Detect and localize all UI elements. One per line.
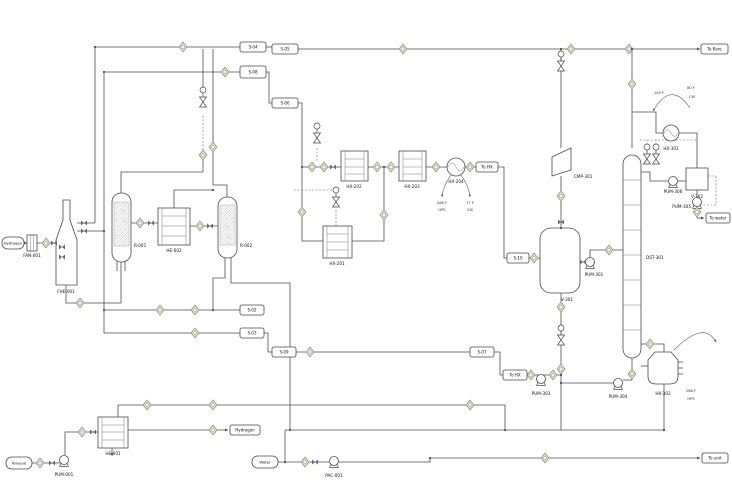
utility-arrow-icon xyxy=(653,95,690,111)
feed-flag-water[interactable]: Water xyxy=(252,456,278,468)
pipe-segment xyxy=(213,258,225,310)
equipment-label-he001: HE-001 xyxy=(105,451,121,456)
stream-indicator-icon[interactable] xyxy=(380,210,388,220)
pipe-junction xyxy=(560,48,562,50)
equipment-pum304[interactable] xyxy=(614,379,623,390)
stream-tag-label: To HX xyxy=(480,165,492,170)
stream-tag-to-hx-2[interactable]: To HX xyxy=(503,370,527,380)
stream-indicator-icon[interactable] xyxy=(646,339,654,349)
equipment-fan001[interactable]: FAN-001 xyxy=(23,235,41,258)
stream-indicator-icon[interactable] xyxy=(298,207,306,217)
hx204-utility-left: HPS xyxy=(438,208,446,212)
equipment-label-pum001: PUM-001 xyxy=(55,472,74,477)
utility-arrow-icon xyxy=(674,333,716,350)
stream-tag-label: S-06 xyxy=(280,101,290,106)
equipment-label-dst301: DST-301 xyxy=(646,255,664,260)
stream-indicator-icon[interactable] xyxy=(199,150,207,160)
equipment-he002[interactable]: HE-002 xyxy=(158,208,190,253)
equipment-hx302[interactable]: HX-302 268 F HPS xyxy=(648,352,696,401)
pipe-segment xyxy=(632,112,663,133)
stream-indicator-icon[interactable] xyxy=(209,142,217,152)
pipe-segment xyxy=(118,405,505,430)
equipment-label-pum304: PUM-304 xyxy=(609,394,628,399)
control-valve-icon[interactable] xyxy=(200,87,207,107)
pipe-union-icon xyxy=(81,221,87,226)
equipment-label-v301: V-301 xyxy=(561,297,573,302)
stream-tag-s03[interactable]: S-03 xyxy=(240,328,264,338)
stream-tag-label: S-10 xyxy=(513,256,523,261)
stream-tag-label: To HX xyxy=(508,373,520,378)
control-valve-icon[interactable] xyxy=(333,187,340,207)
stream-indicator-icon[interactable] xyxy=(605,245,613,255)
control-valve-icon[interactable] xyxy=(558,325,565,345)
control-valve-icon[interactable] xyxy=(314,123,321,143)
pipe-junction xyxy=(284,461,286,463)
stream-tag-s02[interactable]: S-02 xyxy=(240,305,264,315)
equipment-label-hx201: HX-201 xyxy=(329,261,345,266)
stream-indicator-icon[interactable] xyxy=(76,298,84,308)
stream-indicator-icon[interactable] xyxy=(221,67,229,77)
pipe-union-icon xyxy=(330,165,336,170)
stream-indicator-icon[interactable] xyxy=(399,44,407,54)
pipe-segment xyxy=(498,167,507,258)
stream-indicator-icon[interactable] xyxy=(628,79,636,89)
equipment-hx201[interactable]: HX-201 xyxy=(323,226,352,266)
stream-indicator-icon[interactable] xyxy=(42,238,50,248)
product-tag-label: To unit xyxy=(707,456,722,461)
equipment-label-cmp301: CMP-301 xyxy=(574,174,593,179)
equipment-dst301[interactable]: DST-301 xyxy=(623,155,664,358)
pipe-junction xyxy=(301,166,303,168)
stream-tag-label: S-08 xyxy=(248,70,258,75)
stream-indicator-icon[interactable] xyxy=(557,364,565,374)
control-valve-icon[interactable] xyxy=(653,144,660,164)
equipment-pum306[interactable] xyxy=(669,177,678,188)
stream-indicator-icon[interactable] xyxy=(209,400,217,410)
equipment-label-pac001: PAC-001 xyxy=(325,473,343,478)
pipe-junction xyxy=(631,48,633,50)
pipe-segment xyxy=(231,258,290,430)
equipment-label-r001: R-001 xyxy=(134,243,147,248)
feed-flag-hydrogen[interactable]: Hydrogen xyxy=(2,237,24,249)
control-valve-icon[interactable] xyxy=(644,144,651,164)
stream-indicator-icon[interactable] xyxy=(628,369,636,379)
process-flow-diagram-canvas[interactable]: Hydrogen FAN-001 FHE-001 R-001 HE-002 R-… xyxy=(0,0,732,495)
pipe-junction xyxy=(212,309,214,311)
stream-tag-to-hx-1[interactable]: To HX xyxy=(476,162,498,172)
equipment-label-pum303: PUM-303 xyxy=(532,391,551,396)
pipe-junction xyxy=(383,166,385,168)
stream-indicator-icon[interactable] xyxy=(320,162,328,172)
pipe-junction xyxy=(560,227,562,229)
equipment-label-hx204: HX-204 xyxy=(448,179,464,184)
equipment-label-hx301: HX-301 xyxy=(663,146,679,151)
product-tag-label: Hydrogen xyxy=(235,428,255,433)
pipe-junction xyxy=(94,46,96,48)
hx301-utility-right: CW xyxy=(689,95,696,99)
stream-indicator-icon[interactable] xyxy=(466,162,474,172)
stream-tag-label: S-07 xyxy=(477,350,487,355)
stream-indicator-icon[interactable] xyxy=(557,302,565,312)
stream-indicator-icon[interactable] xyxy=(549,370,557,380)
stream-indicator-icon[interactable] xyxy=(557,191,565,201)
pipe-union-icon xyxy=(148,221,154,226)
stream-indicator-icon[interactable] xyxy=(432,162,440,172)
pipe-union-icon xyxy=(207,224,213,229)
stream-tag-label: S-05 xyxy=(280,47,290,52)
stream-tag-s05[interactable]: S-05 xyxy=(272,44,298,54)
equipment-v301[interactable]: V-301 xyxy=(540,228,580,302)
pipe-junction xyxy=(663,429,665,431)
product-tag-to-water[interactable]: To water xyxy=(706,213,730,223)
stream-indicator-icon[interactable] xyxy=(373,162,381,172)
product-tag-to-unit[interactable]: To unit xyxy=(702,453,728,463)
equipment-he001[interactable]: HE-001 xyxy=(98,417,128,456)
hx301-temp-right: 80 F xyxy=(687,86,695,90)
stream-indicator-icon[interactable] xyxy=(179,42,187,52)
equipment-label-pum306: PUM-306 xyxy=(664,189,683,194)
pipe-segment xyxy=(302,167,323,241)
hx302-temp: 268 F xyxy=(686,389,696,393)
equipment-label-hx203: HX-203 xyxy=(404,184,420,189)
pipe-union-icon xyxy=(81,229,87,234)
stream-indicator-icon[interactable] xyxy=(156,305,164,315)
hx204-utility-right: CW xyxy=(467,208,474,212)
stream-indicator-icon[interactable] xyxy=(530,253,538,263)
pipe-junction xyxy=(103,71,105,73)
feed-label-toluene: Toluene xyxy=(11,461,27,466)
stream-tag-label: S-02 xyxy=(247,308,257,313)
pipe-junction xyxy=(429,457,431,459)
stream-indicator-icon[interactable] xyxy=(136,218,144,228)
equipment-v302[interactable]: V-302 xyxy=(686,168,708,199)
stream-tag-label: S-09 xyxy=(279,350,289,355)
equipment-label-hx202: HX-202 xyxy=(346,184,362,189)
equipment-label-hx302: HX-302 xyxy=(655,391,671,396)
stream-indicator-icon[interactable] xyxy=(209,425,217,435)
stream-tag-label: S-04 xyxy=(248,45,258,50)
product-tag-hydrogen[interactable]: Hydrogen xyxy=(230,425,260,435)
hx302-utility: HPS xyxy=(687,397,695,401)
stream-indicator-icon[interactable] xyxy=(36,458,44,468)
stream-indicator-icon[interactable] xyxy=(78,427,86,437)
stream-tag-s06[interactable]: S-06 xyxy=(272,98,298,108)
stream-indicator-icon[interactable] xyxy=(191,305,199,315)
equipment-r001[interactable]: R-001 xyxy=(112,193,147,262)
equipment-label-pum301: PUM-301 xyxy=(585,272,604,277)
stream-indicator-icon[interactable] xyxy=(308,162,316,172)
pipe-segment xyxy=(266,72,272,103)
equipment-hx203[interactable]: HX-203 xyxy=(399,151,426,189)
equipment-r002[interactable]: R-002 xyxy=(218,197,253,258)
pipe-segment xyxy=(679,133,697,168)
pipe-segment xyxy=(641,172,668,181)
stream-indicator-icon[interactable] xyxy=(143,400,151,410)
equipment-label-r002: R-002 xyxy=(240,243,253,248)
stream-indicator-icon[interactable] xyxy=(191,328,199,338)
pipe-junction xyxy=(212,189,214,191)
equipment-pum303[interactable] xyxy=(537,375,546,386)
control-valve-icon[interactable] xyxy=(558,51,565,71)
stream-tag-s08[interactable]: S-08 xyxy=(240,66,266,78)
pipe-junction xyxy=(560,374,562,376)
stream-tag-s07[interactable]: S-07 xyxy=(470,347,494,357)
pipe-segment xyxy=(339,458,430,462)
stream-indicator-icon[interactable] xyxy=(466,400,474,410)
pipe-junction xyxy=(560,382,562,384)
feed-label-hydrogen: Hydrogen xyxy=(4,241,23,246)
equipment-hx202[interactable]: HX-202 xyxy=(341,151,368,189)
stream-indicator-icon[interactable] xyxy=(567,44,575,54)
pipe-junction xyxy=(103,230,105,232)
hx204-temp-right: 77 F xyxy=(466,201,474,205)
stream-indicator-icon[interactable] xyxy=(301,457,309,467)
pipe-junction xyxy=(103,309,105,311)
stream-tag-s04[interactable]: S-04 xyxy=(240,42,266,52)
stream-indicator-icon[interactable] xyxy=(527,370,535,380)
product-tag-label: To water xyxy=(709,216,727,221)
stream-indicator-icon[interactable] xyxy=(541,453,549,463)
stream-indicator-icon[interactable] xyxy=(306,347,314,357)
stream-indicator-icon[interactable] xyxy=(196,221,204,231)
equipment-pum001[interactable] xyxy=(60,456,69,467)
pipe-union-icon xyxy=(312,460,318,465)
equipment-pac001[interactable] xyxy=(330,457,339,468)
pipe-segment xyxy=(264,333,272,352)
hx204-temp-left: 268 F xyxy=(437,201,447,205)
stream-tag-s09[interactable]: S-09 xyxy=(272,347,296,357)
pipe-union-icon xyxy=(580,260,586,265)
equipment-cmp301[interactable]: CMP-301 xyxy=(552,148,593,179)
product-tag-label: To flare xyxy=(706,47,722,52)
equipment-label-fan001: FAN-001 xyxy=(23,253,41,258)
pipe-junction xyxy=(289,429,291,431)
stream-tag-s10[interactable]: S-10 xyxy=(507,253,529,263)
hx301-temp-left: 100 F xyxy=(654,91,664,95)
feed-flag-toluene[interactable]: Toluene xyxy=(6,457,32,469)
equipment-label-fhe001: FHE-001 xyxy=(57,289,75,294)
stream-indicator-icon[interactable] xyxy=(387,162,395,172)
pipe-union-icon xyxy=(49,461,55,466)
stream-tag-label: S-03 xyxy=(247,331,257,336)
pipe-segment xyxy=(494,352,503,375)
equipment-hx301[interactable]: HX-301 100 F 80 F CW xyxy=(654,86,696,151)
pipe-junction xyxy=(504,429,506,431)
feed-label-water: Water xyxy=(259,460,271,465)
equipment-label-he002: HE-002 xyxy=(166,248,182,253)
equipment-label-pum305: PUM-305 xyxy=(672,204,691,209)
pipe-segment xyxy=(174,190,213,208)
pipe-union-icon xyxy=(90,430,96,435)
equipment-pum301[interactable] xyxy=(586,258,595,269)
product-tag-to-flare[interactable]: To flare xyxy=(701,44,728,54)
process-flow-diagram-page: Hydrogen FAN-001 FHE-001 R-001 HE-002 R-… xyxy=(0,0,732,495)
